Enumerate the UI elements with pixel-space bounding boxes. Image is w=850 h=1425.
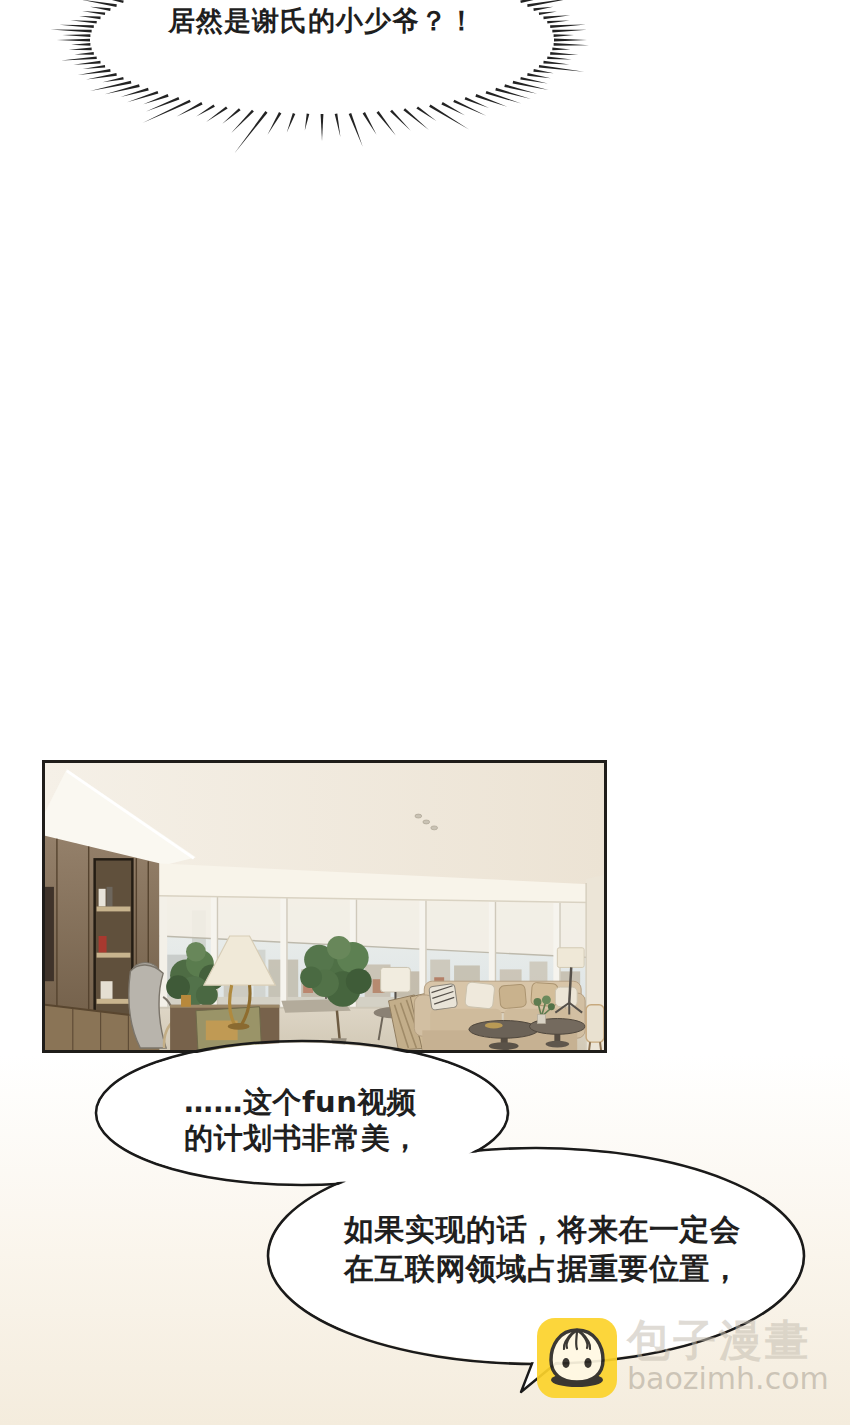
burst-line [305,114,310,131]
burst-line [196,104,215,116]
burst-line [554,39,587,42]
burst-line [550,52,578,55]
burst-line [363,112,377,135]
watermark-text: 包子漫畫 baozimh.com [627,1318,829,1396]
burst-line [554,43,589,46]
burst-line [78,69,111,75]
burst-line [335,114,341,138]
baozi-logo-icon [537,1318,617,1398]
burst-line [61,56,97,60]
scene-panel [42,760,607,1053]
burst-line [83,65,106,69]
burst-line [75,52,94,55]
burst-line [520,77,548,84]
burst-line [146,97,179,112]
burst-line [105,0,124,3]
burst-line [543,61,569,65]
burst-line [69,48,92,51]
watermark-site-name: 包子漫畫 [627,1318,829,1362]
baozimh-watermark: 包子漫畫 baozimh.com [537,1318,829,1398]
comic-page: 居然是谢氏的小少爷？！ [0,0,850,1425]
burst-line [86,73,117,79]
burst-line [268,112,282,135]
burst-line [103,77,124,82]
bubble-1-line-1: ……这个fun视频 [184,1084,420,1120]
burst-line [71,43,90,46]
shout-text: 居然是谢氏的小少爷？！ [0,5,644,37]
bubble-2-line-1: 如果实现的话，将来在一定会 [344,1210,741,1249]
burst-line [57,39,90,42]
burst-line [527,73,551,78]
burst-line [234,111,267,154]
burst-line [222,108,240,124]
picture-frame [45,887,54,981]
bubble-2-line-2: 在互联网领域占据重要位置， [344,1249,741,1288]
burst-line [547,56,572,59]
burst-line [429,104,469,129]
burst-line [321,114,324,141]
bubble-1-line-2: 的计划书非常美， [184,1120,420,1156]
burst-line [552,48,570,51]
speech-bubble-1-text: ……这个fun视频 的计划书非常美， [184,1084,420,1156]
burst-line [486,91,522,104]
scene-illustration [45,763,604,1050]
burst-line [453,100,486,116]
burst-line [287,113,296,132]
watermark-site-url: baozimh.com [627,1362,829,1396]
burst-line [377,111,397,136]
burst-line [349,113,363,147]
burst-line [73,61,100,65]
burst-line [403,108,429,130]
burst-line [533,69,553,73]
burst-line [539,65,584,72]
speech-bubble-2-text: 如果实现的话，将来在一定会 在互联网领域占据重要位置， [344,1210,741,1288]
